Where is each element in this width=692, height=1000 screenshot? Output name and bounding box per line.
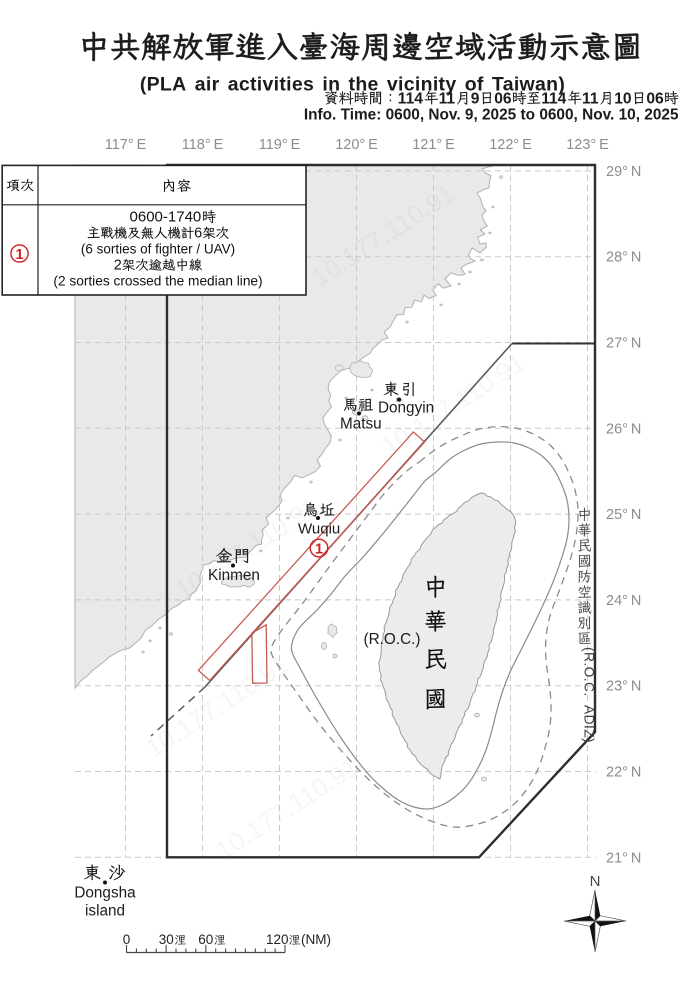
- svg-text:1: 1: [15, 247, 23, 263]
- svg-text:0600-1740: 0600-1740: [130, 209, 202, 226]
- svg-text:120° E: 120° E: [335, 137, 378, 153]
- svg-text:29° N: 29° N: [606, 164, 641, 180]
- svg-text:island: island: [85, 903, 125, 920]
- svg-text:Info. Time: 0600, Nov. 9, 2025: Info. Time: 0600, Nov. 9, 2025 to 0600, …: [304, 107, 679, 124]
- svg-text:06: 06: [494, 91, 512, 108]
- svg-text:11: 11: [582, 91, 599, 108]
- svg-text:60: 60: [198, 932, 213, 947]
- svg-text:121° E: 121° E: [412, 137, 455, 153]
- svg-text:(R.O.C. ADIZ): (R.O.C. ADIZ): [582, 647, 597, 743]
- svg-text:0: 0: [123, 932, 131, 947]
- svg-text:06: 06: [646, 91, 664, 108]
- svg-text:(6 sorties of fighter / UAV): (6 sorties of fighter / UAV): [81, 242, 235, 257]
- svg-text:9: 9: [471, 91, 480, 108]
- svg-text:6: 6: [194, 226, 202, 242]
- svg-text:26° N: 26° N: [606, 421, 641, 437]
- svg-text:(NM): (NM): [301, 932, 331, 947]
- svg-text:122° E: 122° E: [489, 137, 532, 153]
- svg-text:23° N: 23° N: [606, 679, 641, 695]
- svg-text:1: 1: [315, 542, 323, 558]
- svg-text:118° E: 118° E: [182, 137, 224, 153]
- svg-text:25° N: 25° N: [606, 507, 641, 523]
- svg-text:24° N: 24° N: [606, 593, 641, 609]
- svg-text:2: 2: [114, 258, 122, 274]
- svg-text:22° N: 22° N: [606, 765, 641, 781]
- svg-text:117° E: 117° E: [105, 137, 147, 153]
- svg-text:Dongsha: Dongsha: [74, 885, 136, 902]
- svg-text:N: N: [590, 873, 601, 890]
- svg-text:10: 10: [614, 91, 632, 108]
- svg-text:Matsu: Matsu: [340, 416, 382, 433]
- svg-text:114: 114: [541, 91, 566, 108]
- svg-text:27° N: 27° N: [606, 336, 641, 352]
- svg-text:119° E: 119° E: [259, 137, 301, 153]
- svg-text:(2 sorties crossed the median: (2 sorties crossed the median line): [53, 274, 262, 289]
- svg-text:(R.O.C.): (R.O.C.): [364, 631, 421, 648]
- svg-text:120: 120: [266, 932, 289, 947]
- svg-text:114: 114: [398, 91, 423, 108]
- svg-text:21° N: 21° N: [606, 850, 641, 866]
- svg-text:28° N: 28° N: [606, 250, 641, 266]
- svg-text:30: 30: [159, 932, 174, 947]
- svg-text:11: 11: [439, 91, 456, 108]
- svg-text:123° E: 123° E: [566, 137, 609, 153]
